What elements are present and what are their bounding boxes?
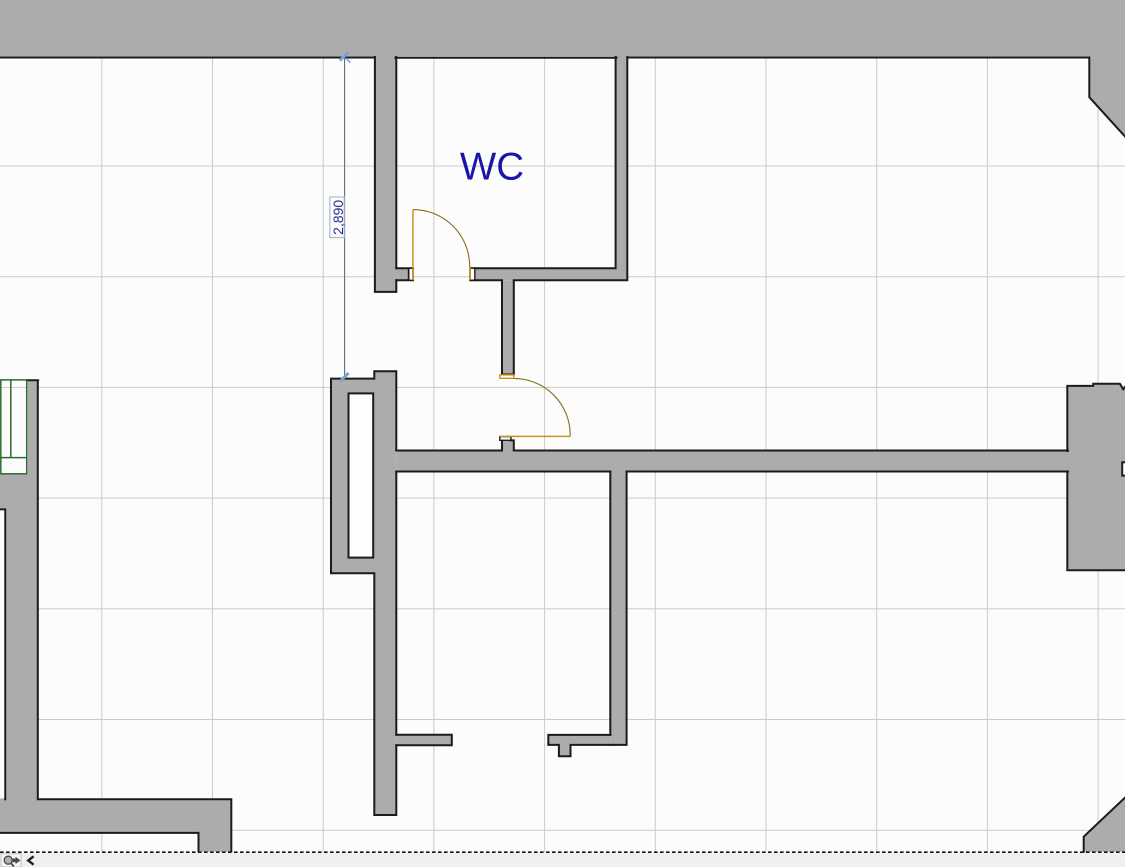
svg-text:2,890: 2,890 [330, 200, 346, 235]
svg-text:WC: WC [460, 146, 524, 189]
